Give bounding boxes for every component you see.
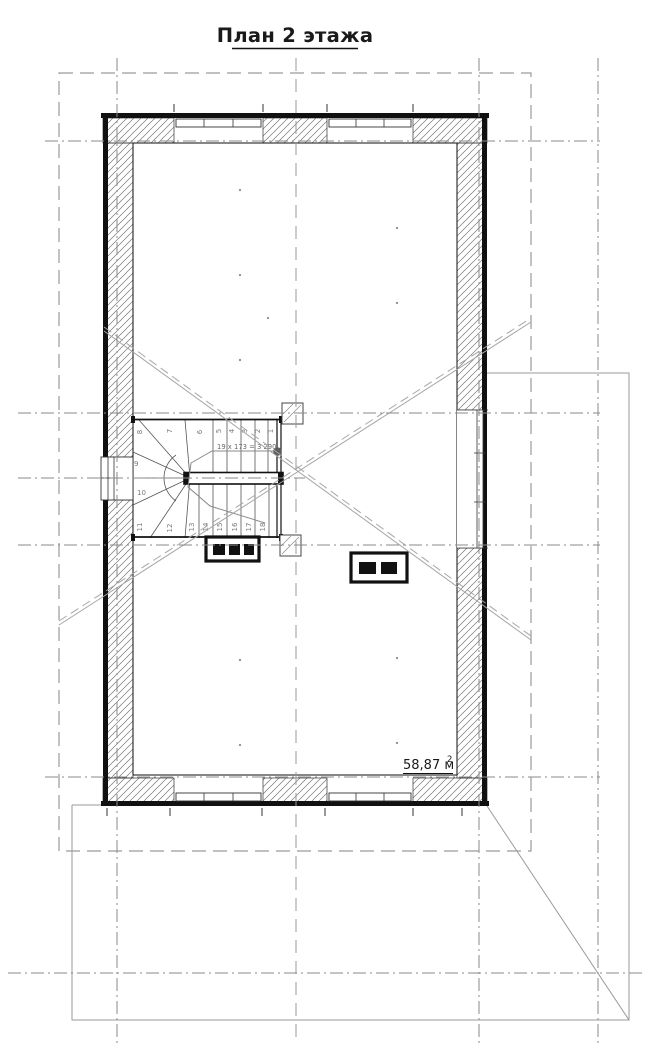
- step-number: 12: [166, 524, 174, 533]
- chimney-block-right: [351, 553, 407, 582]
- area-label-superscript: 2: [447, 755, 452, 765]
- building: [101, 104, 489, 816]
- window-top-right: [329, 119, 411, 127]
- step-number: 11: [136, 523, 144, 532]
- window-bottom-left: [176, 793, 261, 801]
- window-top-left: [176, 119, 261, 127]
- step-number: 2: [254, 429, 262, 433]
- step-number: 6: [196, 429, 204, 434]
- floor-plan-page: 19 x 173 = 3 290 1 2 3 4 5 6 7 8 9 10 11…: [0, 0, 652, 1063]
- building-floor: [103, 113, 487, 806]
- window-right: [457, 410, 488, 548]
- step-number: 13: [188, 523, 196, 532]
- step-number: 18: [259, 523, 267, 532]
- step-number: 17: [245, 523, 253, 532]
- window-bottom-right: [329, 793, 411, 801]
- page-title: План 2 этажа: [217, 24, 374, 47]
- chimney-block-left: [206, 537, 259, 561]
- step-number: 1: [267, 429, 275, 433]
- step-number: 5: [215, 429, 223, 433]
- step-number: 7: [166, 429, 174, 433]
- step-number: 9: [134, 460, 138, 468]
- step-number: 16: [231, 522, 239, 531]
- step-number: 8: [136, 430, 144, 434]
- step-number: 4: [228, 428, 236, 433]
- step-number: 10: [137, 489, 146, 497]
- floor-plan-drawing: 19 x 173 = 3 290 1 2 3 4 5 6 7 8 9 10 11…: [0, 0, 652, 1063]
